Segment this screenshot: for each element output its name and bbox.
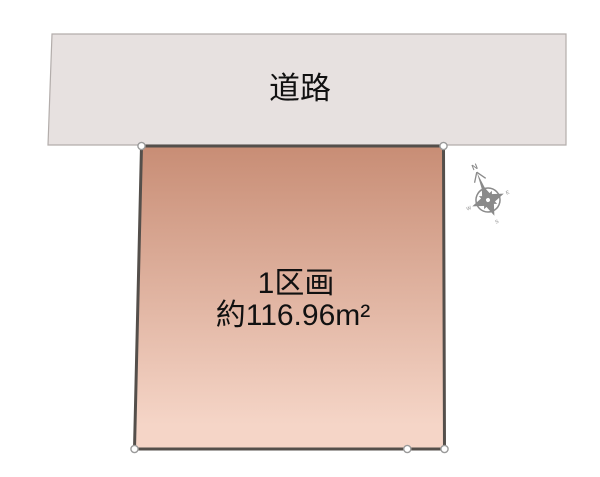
plot-area-label: 約116.96m² — [216, 299, 371, 332]
site-diagram: 道路 1区画 約116.96m² N E S W — [0, 0, 600, 477]
vertex-marker-top-right — [440, 142, 447, 149]
compass-rose: N E S W — [451, 154, 519, 234]
compass-east-label: E — [505, 189, 511, 196]
land-plot-map: 道路 1区画 約116.96m² N E S W — [0, 0, 600, 477]
compass-west-label: W — [466, 205, 473, 212]
vertex-marker-bottom-mid — [404, 445, 411, 452]
compass-north-label: N — [470, 162, 479, 173]
compass-south-label: S — [494, 219, 500, 226]
plot-number-label: 1区画 — [258, 267, 335, 300]
vertex-marker-top-left — [138, 142, 145, 149]
road-label: 道路 — [269, 71, 331, 106]
vertex-marker-bottom-right — [441, 445, 448, 452]
vertex-marker-bottom-left — [131, 445, 138, 452]
